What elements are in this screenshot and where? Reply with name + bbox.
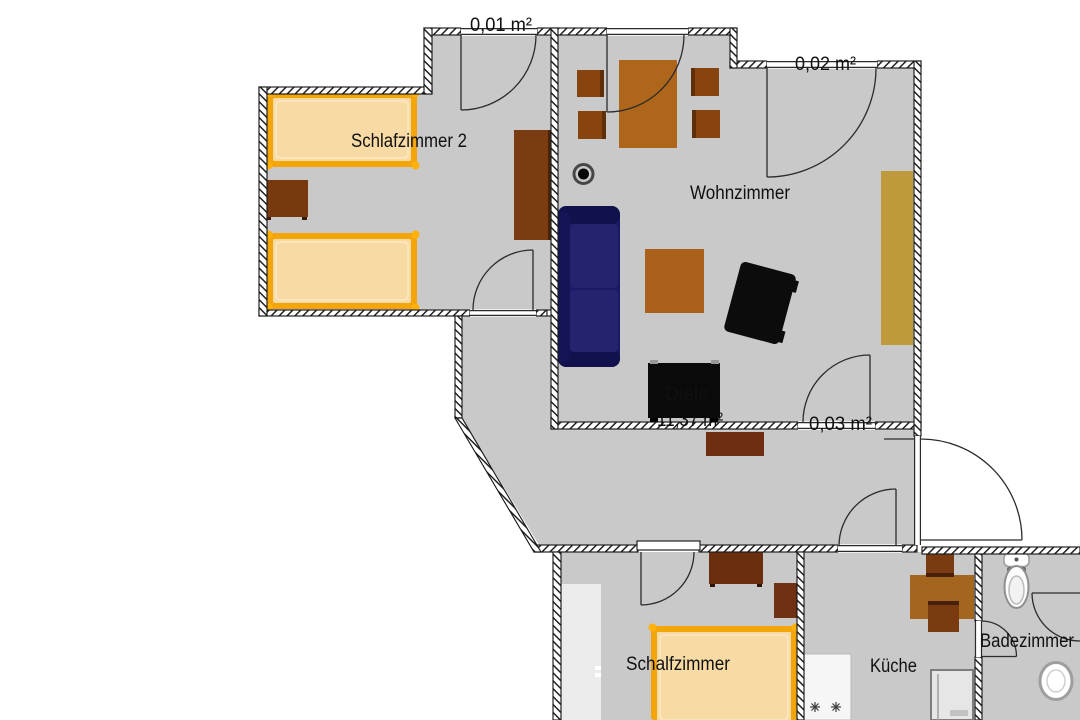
svg-text:0,01 m²: 0,01 m² — [470, 15, 532, 36]
svg-text:Wohnzimmer: Wohnzimmer — [690, 183, 791, 204]
svg-text:Badezimmer: Badezimmer — [980, 631, 1075, 652]
svg-text:Schlafzimmer 2: Schlafzimmer 2 — [351, 131, 467, 152]
svg-text:Diele: Diele — [665, 384, 709, 405]
svg-text:Schalfzimmer: Schalfzimmer — [626, 654, 731, 675]
svg-text:0,02 m²: 0,02 m² — [795, 54, 856, 75]
svg-text:0,03 m²: 0,03 m² — [809, 414, 872, 435]
svg-text:Küche: Küche — [870, 656, 917, 677]
